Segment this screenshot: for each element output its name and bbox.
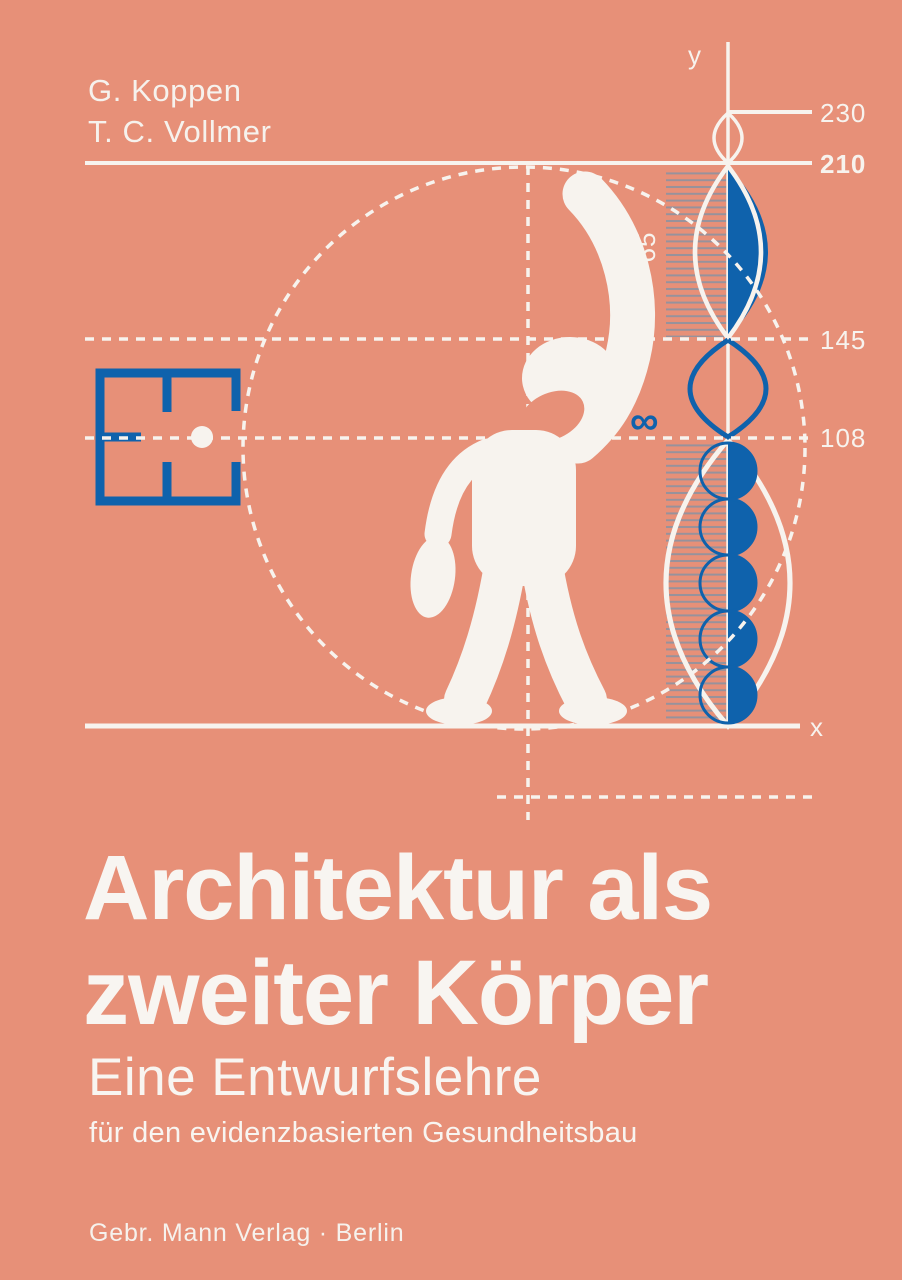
publisher-imprint: Gebr. Mann Verlag · Berlin	[89, 1219, 404, 1248]
hand	[406, 533, 461, 620]
right-foot	[559, 697, 627, 725]
author-line: G. Koppen	[88, 70, 272, 111]
mark-210: 210	[820, 149, 866, 179]
x-axis-label: x	[810, 712, 824, 742]
author-line: T. C. Vollmer	[88, 111, 272, 152]
plan-center-dot	[191, 426, 213, 448]
left-foot	[426, 697, 492, 725]
author-names: G. Koppen T. C. Vollmer	[88, 70, 272, 152]
mark-145: 145	[820, 325, 866, 355]
y-axis-label: y	[688, 40, 702, 70]
book-title: Architektur als zweiter Körper	[83, 836, 712, 1046]
book-subtitle-secondary: für den evidenzbasierten Gesundheitsbau	[89, 1117, 638, 1150]
book-cover: y x 230 210 145 108 65 ∞ G. Koppen T. C.…	[0, 0, 902, 1280]
mark-230: 230	[820, 98, 866, 128]
segment-65-label: 65	[631, 232, 661, 263]
title-line-2: zweiter Körper	[83, 941, 712, 1046]
book-subtitle: Eine Entwurfslehre	[88, 1048, 542, 1108]
title-line-1: Architektur als	[83, 836, 712, 941]
mark-108: 108	[820, 423, 866, 453]
human-figure	[406, 194, 633, 725]
left-leg	[465, 560, 506, 700]
right-leg	[541, 560, 586, 700]
infinity-icon: ∞	[630, 399, 659, 443]
